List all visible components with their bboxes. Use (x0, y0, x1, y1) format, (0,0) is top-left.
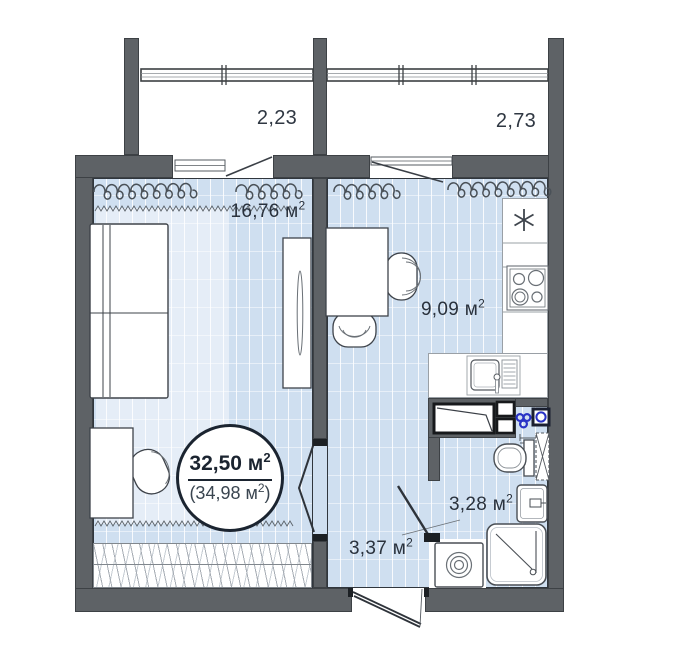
entrance-door (348, 588, 429, 627)
floor-doorway-connector (313, 445, 327, 534)
kitchen-counter-sink (428, 353, 548, 398)
total-area-value: 32,50 м2 (189, 452, 270, 476)
wardrobe-bottom-shelf-line (93, 564, 312, 565)
kitchen-area-label: 9,09 м2 (421, 299, 485, 321)
wall-bottom-left-segment (75, 588, 352, 612)
floor-plan: 2,23 2,73 16,76 м2 9,09 м2 3,28 м2 3,37 … (0, 0, 685, 646)
living-room-balcony-window (175, 157, 272, 176)
living-room-area-label: 16,76 м2 (231, 201, 306, 223)
balcony-pillar-middle (313, 38, 327, 155)
wall-top-middle-segment (273, 155, 370, 178)
balcony-right-area-label: 2,73 (496, 110, 536, 133)
wall-bottom-right-segment (425, 588, 564, 612)
wall-top-left-segment (75, 155, 173, 178)
wall-outer-right (548, 38, 564, 612)
total-area-alt-value: (34,98 м2) (189, 483, 270, 504)
balcony-left-area-label: 2,23 (257, 107, 297, 130)
balcony-glazing (141, 65, 548, 85)
wardrobe-bottom (93, 543, 312, 588)
hallway-area-label: 3,37 м2 (349, 538, 413, 560)
balcony-pillar-left (124, 38, 139, 155)
washer-niche-floor (429, 539, 486, 588)
bathroom-area-label: 3,28 м2 (449, 494, 513, 516)
wall-room-kitchen-divider (313, 178, 327, 439)
wall-vent-niche-block (428, 398, 516, 438)
total-area-badge: 32,50 м2 (34,98 м2) (176, 424, 284, 532)
wall-room-divider-lower-stub (313, 541, 327, 588)
wall-outer-left (75, 155, 93, 612)
